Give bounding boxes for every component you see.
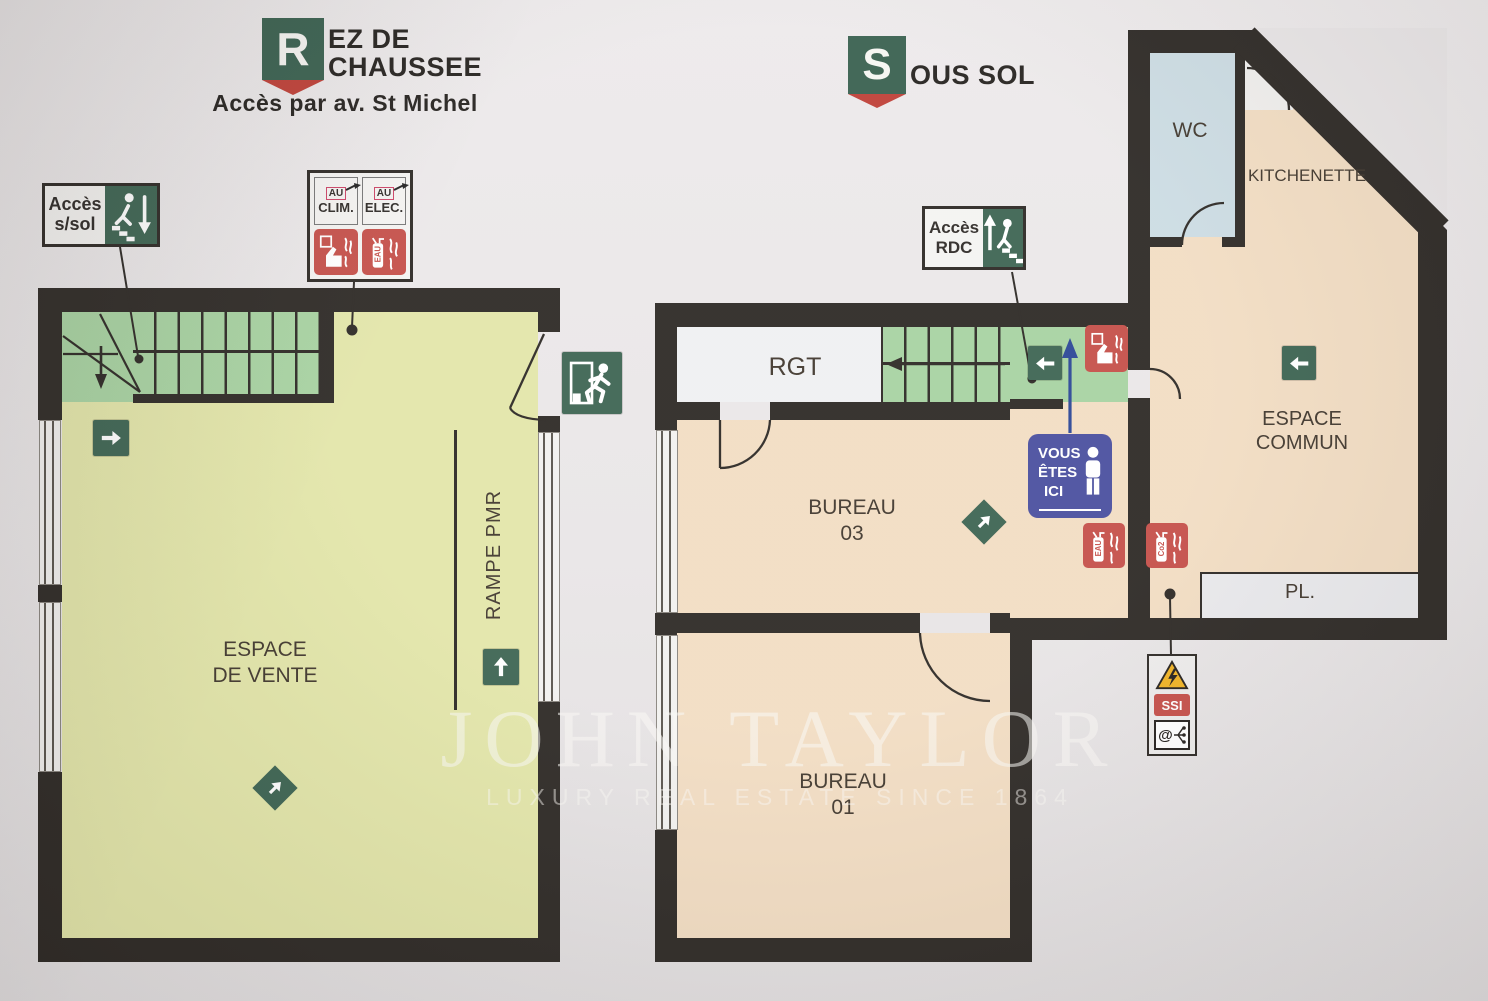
gf-entrance-door-leaf <box>510 334 544 408</box>
gf-entrance-door-arc <box>510 408 546 420</box>
gf-title-line2: CHAUSSEE <box>328 52 482 83</box>
pl-label: PL. <box>1250 580 1350 604</box>
rgt-label: RGT <box>745 352 845 383</box>
electrical-hazard-icon <box>1153 660 1191 690</box>
wc-door-arc <box>1182 203 1224 245</box>
plan-linework <box>0 0 1488 1001</box>
cutoff-elec: AU ELEC. <box>362 177 406 225</box>
acces-rdc-line1: Accès <box>929 218 979 238</box>
svg-text:EAU: EAU <box>374 246 383 263</box>
bureau-03-label: BUREAU 03 <box>772 495 932 546</box>
fire-alarm-call-point-icon <box>314 229 358 275</box>
espace-de-vente-line2: DE VENTE <box>165 663 365 689</box>
sign-acces-ssol: Accès s/sol <box>42 183 160 247</box>
fire-alarm-call-point-icon <box>1085 325 1128 372</box>
cutoff-labels: AU CLIM. AU ELEC. <box>314 177 406 225</box>
sign-acces-rdc: Accès RDC <box>922 206 1026 270</box>
bureau03-door-arc <box>720 420 770 468</box>
rampe-pmr-label: RAMPE PMR <box>482 455 512 655</box>
gf-badge-letter: R <box>276 22 309 76</box>
you-are-here-arrowhead <box>1062 338 1078 358</box>
vei-text: VOUS ÊTES ICI <box>1038 444 1081 501</box>
espace-commun-line2: COMMUN <box>1222 431 1382 455</box>
fire-extinguisher-eau-icon: EAU <box>1083 523 1125 568</box>
sign-utility-cutoffs: AU CLIM. AU ELEC. <box>307 170 413 282</box>
espace-commun-line1: ESPACE <box>1222 407 1382 431</box>
wc-label: WC <box>1160 118 1220 144</box>
stairs-down-pictogram-icon <box>105 186 157 244</box>
elec-au-tag: AU <box>374 187 394 200</box>
bureau-03-line2: 03 <box>772 521 932 547</box>
at-symbol: @ <box>1158 727 1173 744</box>
gf-floor-badge: R <box>262 18 324 80</box>
sign-vous-etes-ici: VOUS ÊTES ICI <box>1028 434 1112 518</box>
person-icon <box>1081 446 1105 500</box>
bs-floor-badge: S <box>848 36 906 94</box>
kitchenette-label: KITCHENETTE <box>1227 166 1387 187</box>
leader-tech-sign <box>1170 597 1171 655</box>
bureau-01-line2: 01 <box>763 795 923 821</box>
bs-title: OUS SOL <box>910 60 1035 91</box>
network-at-icon: @ <box>1154 720 1190 750</box>
stairs-up-pictogram-icon <box>983 209 1023 267</box>
leader-utilities <box>352 282 354 327</box>
ssi-badge: SSI <box>1154 694 1190 716</box>
svg-text:EAU: EAU <box>1094 539 1103 556</box>
espace-de-vente-line1: ESPACE <box>165 637 365 663</box>
vei-line2: ÊTES <box>1038 463 1081 482</box>
sign-technical-riser: SSI @ <box>1147 654 1197 756</box>
espace-commun-label: ESPACE COMMUN <box>1222 407 1382 456</box>
acces-rdc-line2: RDC <box>936 238 973 258</box>
svg-text:Co2: Co2 <box>1157 541 1166 556</box>
bs-badge-letter: S <box>862 40 891 90</box>
acces-rdc-text: Accès RDC <box>925 209 983 267</box>
bureau-01-label: BUREAU 01 <box>763 769 923 820</box>
espace-commun-door-arc <box>1150 369 1180 399</box>
arrow-right-icon <box>93 420 129 456</box>
floor-plan-page: R EZ DE CHAUSSEE Accès par av. St Michel… <box>0 0 1488 1001</box>
cutoff-clim: AU CLIM. <box>314 177 358 225</box>
bureau-03-line1: BUREAU <box>772 495 932 521</box>
espace-de-vente-label: ESPACE DE VENTE <box>165 637 365 688</box>
stair-down-arrowhead <box>95 374 107 389</box>
bureau01-door-arc <box>920 633 990 701</box>
fire-pictos: EAU <box>314 229 406 275</box>
vei-line1: VOUS <box>1038 444 1081 463</box>
gf-title-line1: EZ DE <box>328 24 410 55</box>
arrow-left-icon <box>1028 346 1062 380</box>
arrow-left-icon <box>1282 346 1316 380</box>
arrow-up-icon <box>483 649 519 685</box>
gf-access-subtitle: Accès par av. St Michel <box>150 90 540 117</box>
acces-ssol-text: Accès s/sol <box>45 186 105 244</box>
clim-label: CLIM. <box>318 200 353 215</box>
breaker-arrow-icon <box>345 183 361 191</box>
acces-ssol-line1: Accès <box>48 195 101 215</box>
acces-ssol-line2: s/sol <box>54 215 95 235</box>
fire-extinguisher-co2-icon: Co2 <box>1146 523 1188 568</box>
bureau-01-line1: BUREAU <box>763 769 923 795</box>
breaker-arrow-icon <box>393 183 409 191</box>
elec-label: ELEC. <box>365 200 403 215</box>
leader-acces-ssol <box>120 247 138 356</box>
vei-underline <box>1039 509 1101 512</box>
clim-au-tag: AU <box>326 187 346 200</box>
fire-extinguisher-eau-icon: EAU <box>362 229 406 275</box>
stair-left-arrowhead <box>886 357 902 371</box>
emergency-exit-running-man-icon <box>562 352 622 414</box>
vei-line3: ICI <box>1038 482 1081 501</box>
